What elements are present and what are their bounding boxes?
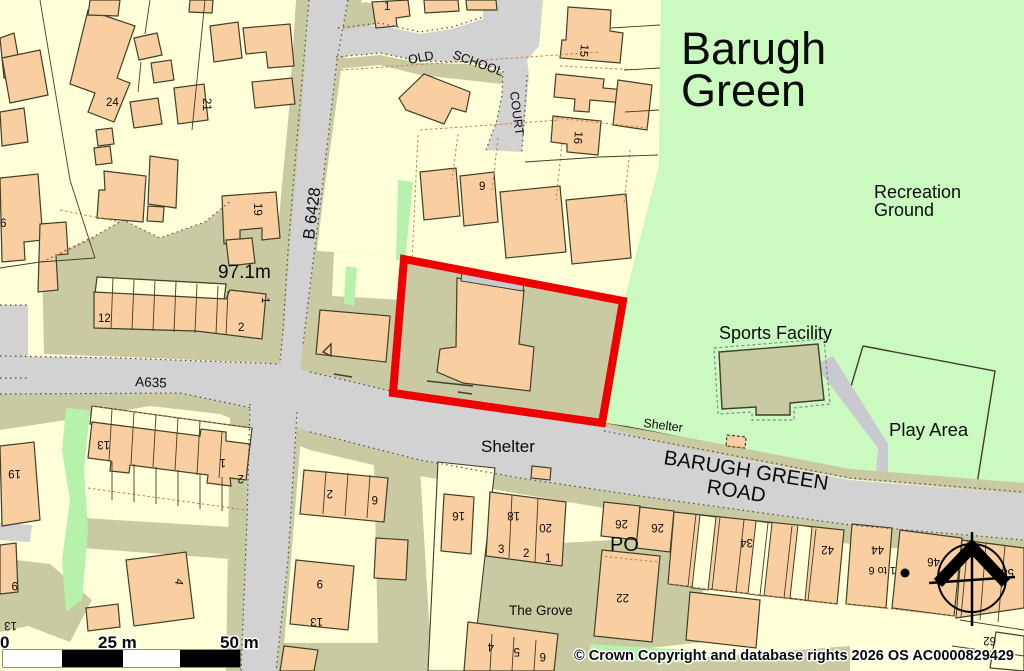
svg-text:50 m: 50 m xyxy=(220,633,259,652)
svg-text:13: 13 xyxy=(4,619,17,631)
svg-text:15: 15 xyxy=(577,44,590,58)
svg-text:Shelter: Shelter xyxy=(481,437,535,456)
svg-text:12: 12 xyxy=(98,313,111,325)
svg-text:A635: A635 xyxy=(135,374,167,391)
svg-text:2: 2 xyxy=(238,322,244,334)
svg-text:44: 44 xyxy=(871,543,884,555)
svg-text:24: 24 xyxy=(106,97,119,109)
svg-text:26: 26 xyxy=(651,521,664,533)
svg-text:2: 2 xyxy=(327,487,333,499)
svg-text:PO: PO xyxy=(610,534,639,556)
svg-text:Green: Green xyxy=(681,65,806,116)
svg-text:© Crown Copyright and database: © Crown Copyright and database rights 20… xyxy=(574,648,1014,664)
svg-text:6: 6 xyxy=(540,650,546,662)
svg-text:3: 3 xyxy=(498,544,504,556)
svg-text:1 to 6: 1 to 6 xyxy=(868,564,896,576)
svg-text:1: 1 xyxy=(259,297,271,304)
svg-text:34: 34 xyxy=(740,536,753,548)
svg-text:2: 2 xyxy=(238,472,244,484)
svg-text:Ground: Ground xyxy=(874,200,934,220)
svg-text:Sports Facility: Sports Facility xyxy=(719,323,832,343)
svg-text:46: 46 xyxy=(927,555,940,567)
svg-text:9: 9 xyxy=(479,181,485,193)
svg-text:0: 0 xyxy=(0,633,9,652)
svg-text:6: 6 xyxy=(372,493,378,505)
svg-text:16: 16 xyxy=(452,509,465,521)
svg-text:13: 13 xyxy=(310,615,323,627)
svg-text:22: 22 xyxy=(616,591,629,603)
svg-text:20: 20 xyxy=(539,521,552,533)
svg-text:1: 1 xyxy=(384,1,390,13)
svg-text:1: 1 xyxy=(220,456,226,468)
svg-text:42: 42 xyxy=(821,543,834,555)
svg-text:26: 26 xyxy=(615,517,628,529)
svg-text:16: 16 xyxy=(571,131,584,145)
svg-text:6: 6 xyxy=(0,218,6,230)
svg-text:62: 62 xyxy=(983,634,996,646)
svg-text:18: 18 xyxy=(507,509,520,521)
svg-text:Recreation: Recreation xyxy=(874,182,961,202)
svg-text:4: 4 xyxy=(487,640,494,652)
svg-text:25 m: 25 m xyxy=(98,633,137,652)
svg-text:2: 2 xyxy=(523,548,529,560)
svg-text:97.1m: 97.1m xyxy=(218,262,271,283)
svg-text:9: 9 xyxy=(317,577,323,589)
svg-text:Play Area: Play Area xyxy=(889,419,969,440)
svg-text:9: 9 xyxy=(12,579,18,591)
svg-text:21: 21 xyxy=(200,98,212,111)
svg-text:5: 5 xyxy=(514,645,520,657)
svg-text:1: 1 xyxy=(545,553,551,565)
svg-text:13: 13 xyxy=(97,438,110,450)
svg-text:19: 19 xyxy=(251,203,263,216)
svg-text:19: 19 xyxy=(8,467,21,479)
svg-text:The Grove: The Grove xyxy=(509,603,573,618)
